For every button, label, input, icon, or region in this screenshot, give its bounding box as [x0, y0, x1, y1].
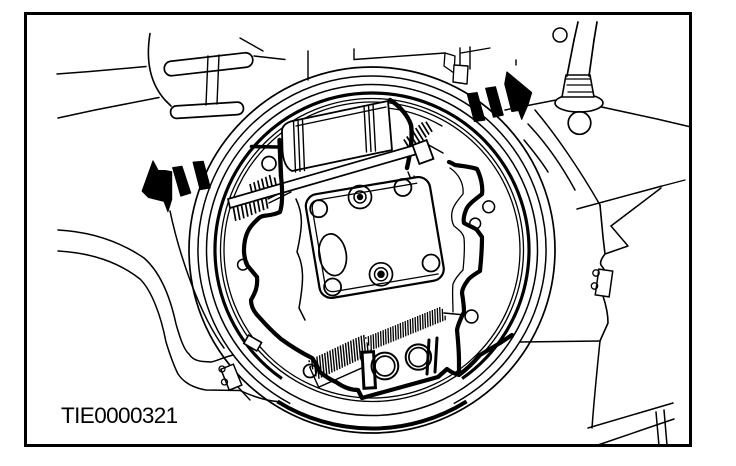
svg-text:TIE0000321: TIE0000321 [61, 403, 178, 428]
